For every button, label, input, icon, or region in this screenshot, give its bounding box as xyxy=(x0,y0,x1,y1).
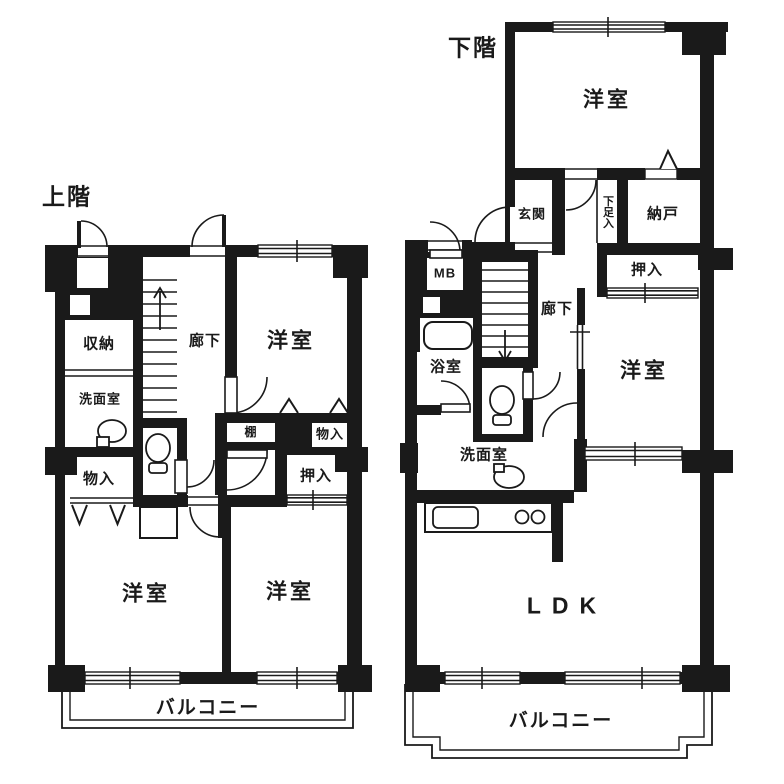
room-label-corridor-upper: 廊下 xyxy=(189,334,221,349)
floorplan-page: 上階 収納 洗面室 廊下 洋室 物入 棚 物入 押入 洋室 洋室 バルコニー 下… xyxy=(0,0,784,784)
understair-box xyxy=(140,507,177,538)
room-label-shoe-cabinet: 下足入 xyxy=(602,196,613,229)
kitchen-sink-icon xyxy=(433,507,478,528)
room-label-bedroom-top-upper: 洋室 xyxy=(267,331,315,352)
room-label-storeroom: 納戸 xyxy=(647,207,679,222)
balcony-label-upper: バルコニー xyxy=(156,699,261,718)
entrance-door-arc-icon xyxy=(475,207,510,242)
door-arc-icon xyxy=(192,215,224,247)
sink-icon xyxy=(494,464,524,488)
sliding-door-icon xyxy=(287,490,347,510)
staircase-down xyxy=(481,270,528,361)
door-arc-icon xyxy=(543,403,577,437)
room-label-closet-left: 物入 xyxy=(83,472,115,487)
lower-floor-label: 下階 xyxy=(448,37,498,60)
room-label-bedroom-top-lower: 洋室 xyxy=(583,90,631,111)
sink-icon xyxy=(97,420,126,447)
stove-burner-icon xyxy=(516,511,529,524)
room-label-entrance: 玄関 xyxy=(518,208,546,221)
room-label-shelf: 棚 xyxy=(244,426,257,438)
room-label-ldk: LDK xyxy=(527,595,607,618)
door-arc-icon xyxy=(190,507,220,537)
staircase-up xyxy=(143,280,177,412)
folding-door-icon xyxy=(660,151,677,169)
balcony-label-lower: バルコニー xyxy=(509,712,614,731)
room-label-washroom-upper: 洗面室 xyxy=(79,393,121,406)
room-label-bedroom-bottom-left: 洋室 xyxy=(122,584,170,605)
lower-floor-plan xyxy=(400,22,733,692)
toilet-icon xyxy=(490,386,514,425)
door-arc-icon xyxy=(566,180,596,210)
room-label-oshiire-upper: 押入 xyxy=(300,469,332,484)
room-label-storage: 収納 xyxy=(83,337,115,352)
room-label-oshiire-lower: 押入 xyxy=(631,263,663,278)
door-arc-icon xyxy=(187,460,214,487)
room-label-washroom-lower: 洗面室 xyxy=(460,448,508,463)
room-label-meter-box: MB xyxy=(434,267,456,280)
room-label-bedroom-middle: 洋室 xyxy=(620,361,668,382)
room-label-bedroom-bottom-right: 洋室 xyxy=(266,582,314,603)
upper-floor-plan xyxy=(45,215,372,692)
sliding-door-icon xyxy=(570,283,698,369)
upper-floor-label: 上階 xyxy=(42,186,92,209)
lower-floor-details xyxy=(405,17,712,758)
door-arc-icon xyxy=(533,372,560,399)
room-label-closet-right: 物入 xyxy=(316,428,344,441)
kitchen-counter xyxy=(425,503,552,532)
door-arc-icon xyxy=(430,222,460,252)
bathtub-icon xyxy=(424,322,472,349)
door-arc-icon xyxy=(81,221,107,247)
room-label-corridor-lower: 廊下 xyxy=(541,302,573,317)
stove-burner-icon xyxy=(532,511,545,524)
toilet-icon xyxy=(146,434,170,473)
room-label-bathroom: 浴室 xyxy=(430,360,462,375)
